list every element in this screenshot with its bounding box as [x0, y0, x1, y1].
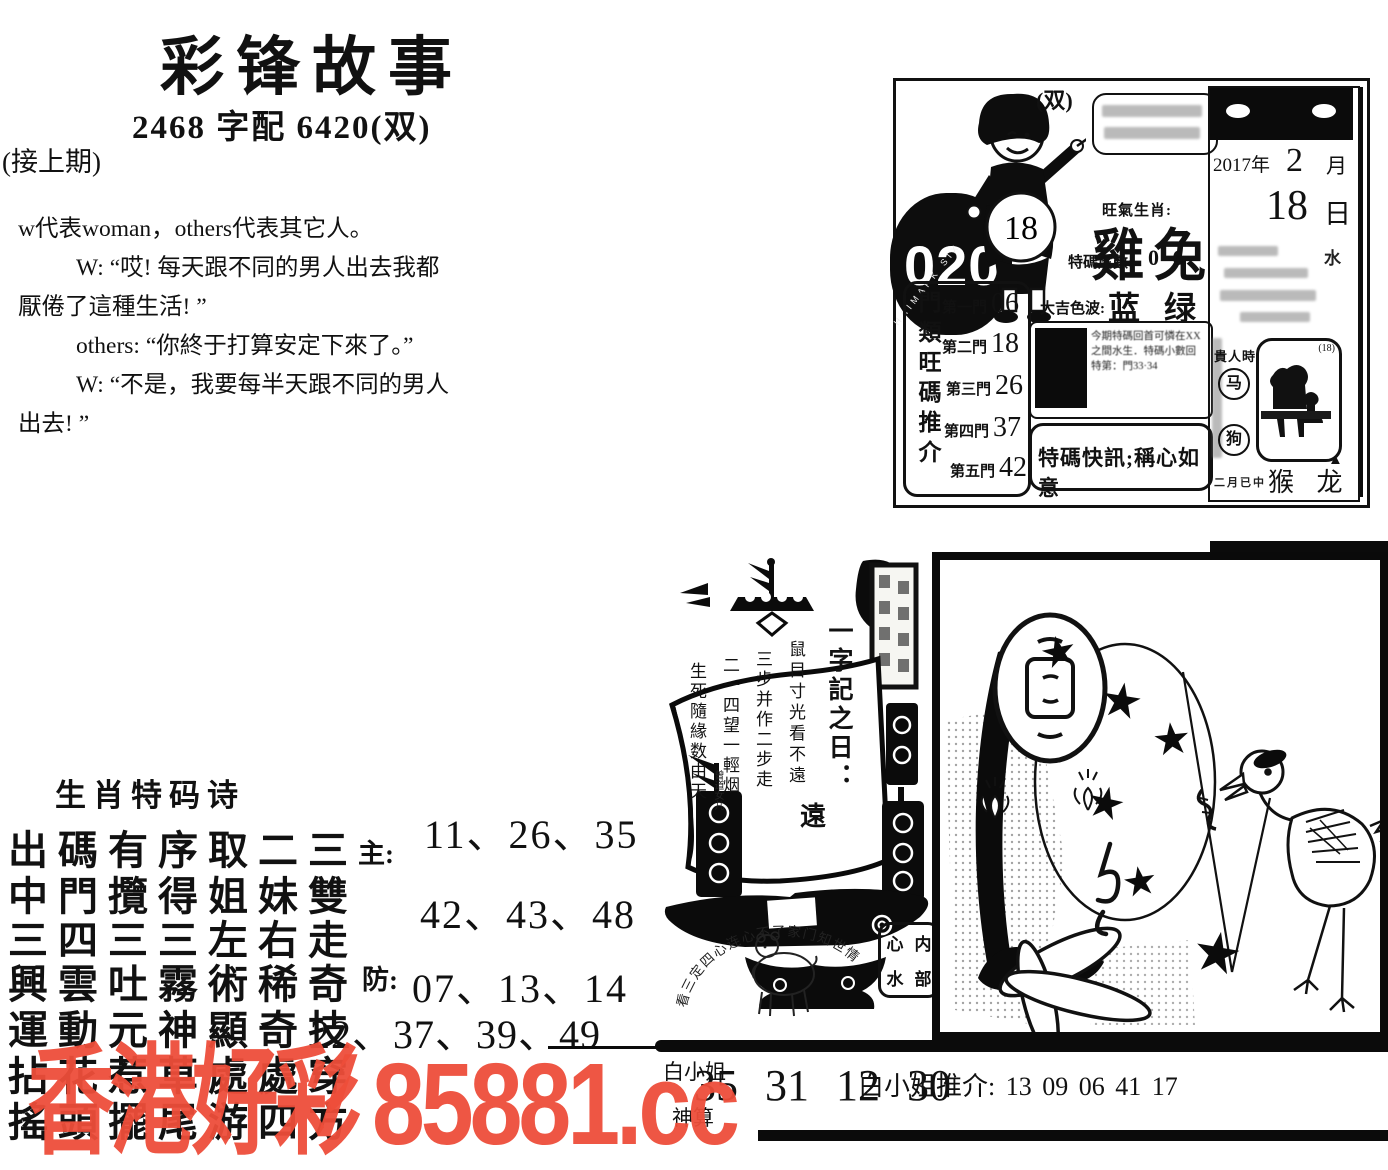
note-line: 特第：門33·34 [1091, 359, 1207, 374]
door-value: 06 [991, 288, 1019, 319]
lucky-color-label: 大吉色波: [1040, 297, 1105, 318]
calendar-month-unit: 月 [1326, 150, 1347, 180]
main-numbers-row2: 42、43、48 [420, 882, 636, 940]
door-value: 26 [995, 370, 1023, 401]
main-numbers-row1: 11、26、35 [424, 802, 639, 860]
note-box: 今期特碼回首可憐在XX 之間水生．特碼小數回 特第：門33·34 [1029, 321, 1213, 419]
door-label: 第一門 [942, 300, 987, 316]
door-row: 第二門 18 [942, 328, 1019, 360]
box-corner-number: (18) [1318, 343, 1335, 354]
noble-zodiac-2: 狗 [1218, 424, 1250, 456]
star-icon: ★ [1150, 716, 1194, 764]
almanac-water-char: 水 [1324, 244, 1341, 269]
story-block: w代表woman，others代表其它人。 W: “哎! 每天跟不同的男人出去我… [18, 210, 504, 444]
stamp-char: 内 [915, 930, 932, 955]
sail-verse-4: 生死隨緣数由天 [684, 662, 709, 852]
doors-box: 門類旺碼推介 第一門 06 第二門 18 第三門 26 第四門 37 第五門 4… [903, 281, 1031, 497]
noble-char: 狗 [1226, 431, 1242, 448]
note-text: 今期特碼回首可憐在XX 之間水生．特碼小數回 特第：門33·34 [1091, 329, 1207, 374]
story-intro: w代表woman，others代表其它人。 [18, 210, 504, 249]
double-mark: (双) [1036, 83, 1073, 115]
noble-zodiac-1: 马 [1218, 368, 1250, 400]
sheep-seal: 看三定四心连心不了家门知世情 [662, 886, 904, 1026]
door-label: 第二門 [942, 340, 987, 356]
special-bulletin-text: 特碼快訊;稱心如意 [1038, 442, 1210, 502]
page-subtitle: 2468 字配 6420(双) [132, 100, 431, 148]
noble-char: 马 [1226, 375, 1242, 392]
story-line: W: “哎! 每天跟不同的男人出去我都 [18, 249, 504, 288]
door-value: 42 [999, 452, 1027, 483]
sail-signature: 曾道女儿 [710, 770, 725, 834]
star-icon: ★ [1097, 675, 1147, 729]
animal-silhouettes [1259, 355, 1333, 451]
door-row: 第五門 42 [950, 452, 1027, 484]
page-title: 彩锋故事 [160, 16, 464, 108]
riddle-shapes [945, 615, 1380, 1032]
calendar-binding [1210, 88, 1353, 140]
story-line: others: “你終于打算安定下來了。” [18, 327, 504, 366]
poem-title: 生肖特码诗 [55, 770, 245, 815]
page-foot-small: 二月已中 [1214, 474, 1266, 490]
story-line: 出去! ” [18, 405, 504, 444]
door-value: 37 [993, 412, 1021, 443]
calendar-day-unit: 日 [1324, 192, 1351, 231]
star-icon: ★ [1119, 859, 1161, 904]
calendar-month: 2 [1286, 142, 1303, 180]
tail-number-value: 0 6 [1148, 245, 1188, 271]
calendar-day: 18 [1266, 182, 1308, 230]
door-row: 第一門 06 [942, 288, 1019, 320]
star-icon: ★ [1188, 922, 1247, 986]
sail-big-char: 遠 [800, 796, 826, 833]
door-label: 第四門 [944, 424, 989, 440]
binding-hole [1226, 104, 1250, 118]
tip-sheet-page: 彩锋故事 2468 字配 6420(双) (接上期) w代表woman，othe… [0, 0, 1388, 1170]
bottom-recommend-numbers: 白小姐推介: 13 09 06 41 17 [858, 1066, 1178, 1103]
door-value: 18 [991, 328, 1019, 359]
page-foot-zodiac: 猴 龙 [1268, 462, 1351, 499]
bottom-strip-bottom-rule [758, 1130, 1388, 1141]
inner-tip-stamp: 心 内 水 部 [878, 922, 940, 998]
main-numbers-label: 主: [358, 832, 394, 871]
page-edge-line [1360, 87, 1363, 497]
bottom-strip-top-rule [655, 1040, 1388, 1052]
story-line: 厭倦了這種生活! ” [18, 288, 504, 327]
story-line: W: “不是，我要每半天跟不同的男人 [18, 366, 504, 405]
calendar-page: 2017年 2 月 18 日 水 貴人時 马 狗 (18) [1208, 86, 1360, 502]
note-line: 之間水生．特碼小數回 [1091, 344, 1207, 359]
noble-hours-label: 貴人時 [1214, 346, 1256, 365]
calendar-panel: 020 HAIMARK SIX 18 [893, 78, 1370, 508]
sheep-seal-graphic: 看三定四心连心不了家门知世情 [674, 923, 880, 1016]
watermark-site-name: 香港好彩 [28, 1042, 356, 1162]
doors-title: 門類旺碼推介 [910, 290, 944, 490]
door-row: 第四門 37 [944, 412, 1021, 444]
watermark-site-url: 85881.cc [372, 1046, 736, 1162]
sail-verse-2: 三步并作二步走 [750, 650, 775, 845]
scribble-banner [1092, 93, 1218, 155]
door-row: 第三門 26 [946, 370, 1023, 402]
tail-number-label: 特碼尾數: [1068, 251, 1133, 272]
stamp-char: 水 [887, 965, 904, 990]
door-label: 第五門 [950, 464, 995, 480]
stamp-char: 心 [887, 930, 904, 955]
calendar-year: 2017年 [1213, 150, 1270, 177]
boy-belly-number: 18 [1004, 210, 1038, 247]
guard-numbers-label: 防: [362, 958, 398, 997]
riddle-picture [940, 560, 1380, 1032]
door-label: 第三門 [946, 382, 991, 398]
censored-block [1035, 328, 1087, 408]
special-bulletin-box: 特碼快訊;稱心如意 [1029, 423, 1213, 491]
continued-note: (接上期) [2, 140, 101, 179]
animal-silhouette-box: (18) [1256, 338, 1342, 462]
binding-hole [1312, 104, 1336, 118]
stamp-char: 部 [915, 965, 932, 990]
note-line: 今期特碼回首可憐在XX [1091, 329, 1207, 344]
riddle-picture-frame: ★ ★ ★ ★ ★ ★ [932, 552, 1388, 1040]
